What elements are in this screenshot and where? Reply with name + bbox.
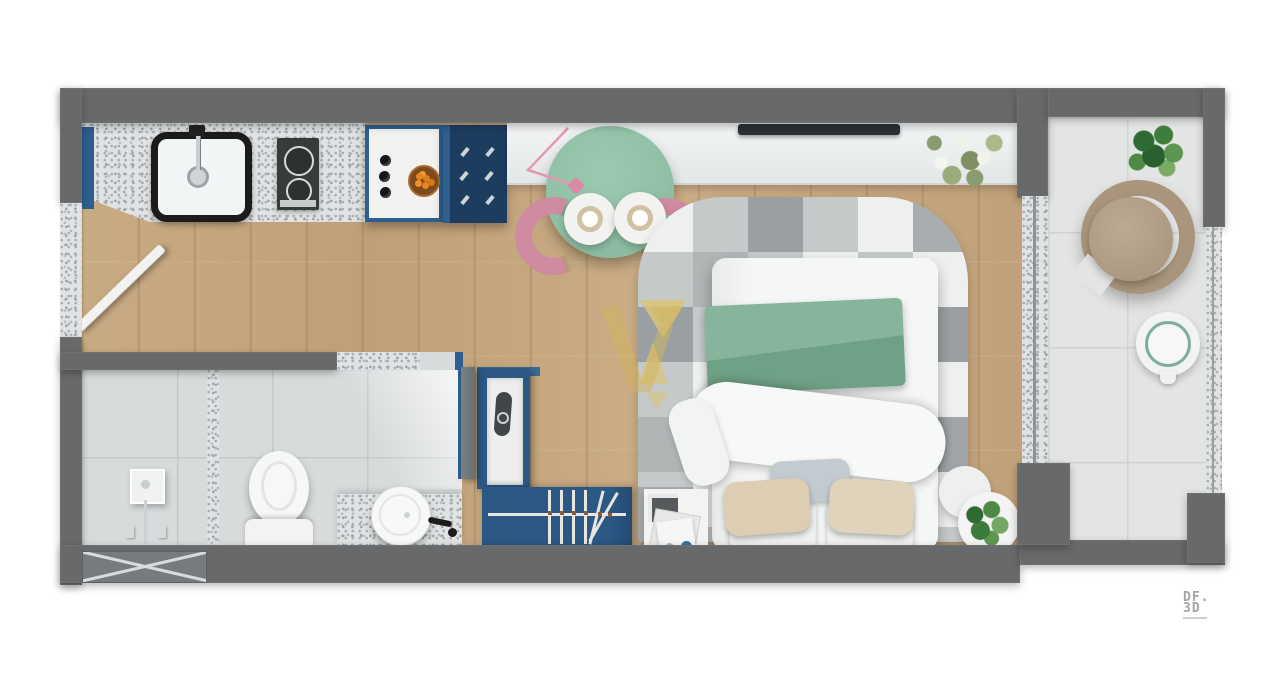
basin-faucet-knob bbox=[448, 528, 457, 537]
shower-partition bbox=[207, 369, 219, 545]
toilet-seat-ring bbox=[261, 461, 297, 511]
hair-dryer-ring bbox=[497, 412, 509, 424]
wall-divider-bedroom-balcony bbox=[1017, 88, 1048, 198]
island-knob-2 bbox=[379, 171, 390, 182]
wall-top-main bbox=[60, 88, 1017, 123]
burner-large bbox=[284, 146, 314, 176]
bed-blanket bbox=[704, 298, 906, 395]
balcony-sliding-door-track bbox=[1033, 196, 1036, 463]
island-knob-1 bbox=[380, 155, 391, 166]
bathroom-doorway-gap bbox=[420, 352, 455, 370]
cup-right bbox=[627, 205, 653, 231]
shower-head-nozzle bbox=[141, 480, 150, 489]
wall-left-top bbox=[60, 88, 82, 203]
washbasin-drain bbox=[404, 512, 410, 518]
bathroom-light-beam bbox=[300, 369, 462, 489]
watermark-v-right-stroke bbox=[639, 326, 673, 392]
balcony-right-glazing-track bbox=[1212, 227, 1214, 493]
wall-right-bottom-block bbox=[1187, 493, 1225, 563]
bedside-plant bbox=[958, 494, 1014, 546]
renderer-logo: DF. 3D bbox=[1183, 592, 1227, 619]
balcony-right-glazing-sill bbox=[1206, 227, 1222, 493]
washbasin-inner-ring bbox=[379, 494, 421, 536]
clothes-hanger-4 bbox=[584, 490, 587, 544]
navy-cabinet-edge bbox=[443, 125, 450, 223]
balcony-table-handle bbox=[1160, 371, 1176, 384]
hanger-hooks bbox=[548, 511, 552, 515]
wall-right-top-block bbox=[1203, 88, 1225, 227]
pendant-cord bbox=[528, 128, 580, 187]
pillow-beige-right bbox=[828, 478, 916, 536]
shower-knob-right bbox=[158, 526, 166, 538]
balcony-table-top bbox=[1149, 325, 1187, 363]
pillow-beige-left bbox=[722, 477, 812, 537]
lounge-chair-seat bbox=[1089, 197, 1173, 281]
island-knob-3 bbox=[380, 187, 391, 198]
bathroom-halfwall-granite bbox=[337, 352, 420, 370]
blue-end-panel bbox=[82, 127, 94, 209]
rug-square-dark-2 bbox=[913, 197, 968, 252]
sink-faucet-stem bbox=[196, 136, 200, 170]
tv bbox=[738, 124, 900, 135]
flower-plant bbox=[922, 122, 1010, 192]
logo-caption-bar bbox=[1183, 617, 1207, 619]
clothes-hanger-2 bbox=[560, 490, 563, 544]
brand-watermark bbox=[595, 300, 700, 400]
fruit-bowl bbox=[408, 165, 440, 197]
cup-left bbox=[577, 206, 603, 232]
rug-square-dark-1 bbox=[748, 197, 803, 252]
floor-plan-render: DF. 3D bbox=[0, 0, 1280, 691]
wardrobe-base-cabinet bbox=[482, 487, 632, 553]
clothes-hanger-1 bbox=[548, 490, 551, 544]
clothes-hanger-3 bbox=[572, 490, 575, 544]
balcony-plant bbox=[1124, 120, 1190, 180]
watermark-v-left-stroke bbox=[600, 306, 645, 392]
oranges bbox=[416, 173, 423, 180]
watermark-triangle bbox=[651, 306, 683, 334]
shower-bar bbox=[144, 500, 147, 544]
bathroom-door-leaf bbox=[461, 367, 475, 479]
sink-faucet-base bbox=[189, 125, 205, 136]
wall-step-bedroom-balcony bbox=[1017, 463, 1070, 545]
navy-cabinet bbox=[443, 125, 507, 223]
wall-bathroom-top bbox=[60, 352, 337, 370]
pendant-lamp bbox=[500, 110, 620, 200]
shower-knob-left bbox=[126, 526, 134, 538]
kitchen-window-sill bbox=[60, 203, 82, 337]
wall-top-balcony bbox=[1048, 88, 1225, 117]
pendant-shade bbox=[567, 177, 585, 195]
cooktop-tray bbox=[280, 200, 316, 207]
hatched-window bbox=[82, 551, 207, 583]
